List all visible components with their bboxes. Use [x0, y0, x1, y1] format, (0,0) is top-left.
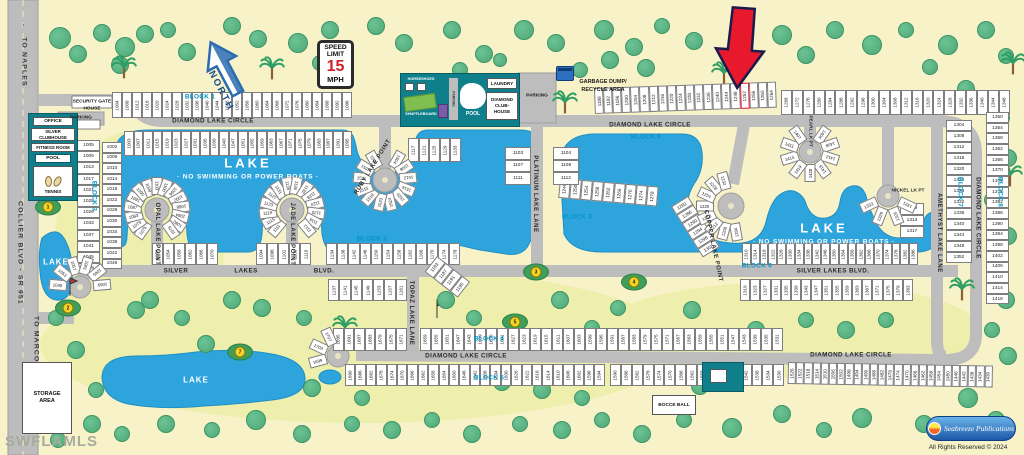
lot-1346: 1346 — [821, 243, 830, 265]
lot-1095: 1095 — [343, 131, 353, 156]
lot-1666: 1666 — [407, 364, 417, 386]
label-block-6: BLOCK 6 — [631, 134, 661, 141]
tree-icon — [683, 301, 701, 319]
lot-1650: 1650 — [449, 364, 459, 386]
tree-icon — [223, 291, 241, 309]
lot-1005: 1005 — [77, 140, 100, 151]
lot-1340: 1340 — [946, 219, 972, 230]
lot-1068: 1068 — [272, 92, 282, 118]
bocce-ball-label: BOCCE BALL — [652, 395, 696, 415]
lot-1016: 1016 — [142, 92, 152, 118]
golf-hole-number: 1 — [43, 202, 54, 213]
lot-1599: 1599 — [585, 328, 596, 351]
lot-1041: 1041 — [77, 241, 100, 252]
lot-1316: 1316 — [946, 153, 972, 164]
lot-1646: 1646 — [459, 364, 469, 386]
golf-hole-number: 7 — [235, 347, 246, 358]
tree-icon — [837, 321, 855, 339]
lot-1614: 1614 — [542, 364, 552, 386]
bocce-building — [702, 362, 744, 392]
lot-col-platinum-east: 110411081112 — [553, 147, 579, 185]
lot-1619: 1619 — [530, 328, 541, 351]
lot-row-b1-south: 1003100710111015101910231027103110351039… — [124, 131, 352, 156]
lot-1590: 1590 — [610, 364, 621, 386]
tree-icon — [127, 301, 145, 319]
lot-1674: 1674 — [387, 364, 397, 386]
lot-1141: 1141 — [339, 279, 350, 301]
tree-icon — [493, 53, 507, 67]
lot-1348: 1348 — [946, 241, 972, 252]
lot-1675: 1675 — [386, 328, 397, 351]
lot-1043: 1043 — [219, 131, 229, 156]
lot-1027: 1027 — [181, 131, 191, 156]
tree-icon — [637, 59, 655, 77]
label-blvd: BLVD. — [314, 268, 334, 275]
lot-1610: 1610 — [553, 364, 563, 386]
lot-1012: 1012 — [132, 92, 142, 118]
palm-tree-icon — [258, 56, 286, 85]
lot-1031: 1031 — [191, 131, 201, 156]
lot-1531: 1531 — [772, 328, 783, 351]
lot-1094: 1094 — [256, 243, 267, 265]
label-platinum-lake-lane: PLATINUM LAKE LANE — [532, 155, 538, 232]
lot-1059: 1059 — [257, 131, 267, 156]
palm-tree-icon — [948, 277, 976, 306]
tree-icon — [601, 51, 619, 69]
lot-1288: 1288 — [835, 90, 846, 115]
tree-icon — [852, 408, 872, 428]
shuffleboard-courts — [403, 93, 437, 112]
lot-1327: 1327 — [760, 279, 770, 301]
lot-1047: 1047 — [229, 131, 239, 156]
lot-row-silver-south-east: 1319132313271331133513391343134713511355… — [740, 279, 913, 301]
lot-1418: 1418 — [986, 294, 1009, 305]
security-gate-label-2: HOUSE — [83, 107, 100, 112]
lot-1336: 1336 — [966, 90, 977, 115]
office-label: OFFICE — [33, 117, 73, 126]
tree-icon — [798, 312, 814, 328]
lot-1570: 1570 — [664, 364, 675, 386]
lot-1535: 1535 — [761, 328, 772, 351]
tree-icon — [115, 37, 135, 57]
lot-1051: 1051 — [238, 131, 248, 156]
swimming-pool-shape — [460, 83, 486, 109]
label-block-7: BLOCK 7 — [957, 177, 964, 207]
lot-1658: 1658 — [428, 364, 438, 386]
lot-1342: 1342 — [812, 243, 821, 265]
tree-icon — [977, 21, 995, 39]
lot-1326: 1326 — [777, 243, 786, 265]
lot-1370: 1370 — [986, 165, 1009, 176]
lot-1606: 1606 — [563, 364, 573, 386]
lot-1062: 1062 — [185, 243, 196, 265]
tree-icon — [321, 21, 339, 39]
tree-icon — [69, 45, 87, 63]
tree-icon — [898, 22, 914, 38]
lot-1083: 1083 — [314, 131, 324, 156]
tree-icon — [514, 20, 534, 40]
lot-1534: 1534 — [762, 364, 773, 386]
lot-1284: 1284 — [825, 90, 836, 115]
lot-1344: 1344 — [946, 230, 972, 241]
tree-icon — [862, 35, 882, 55]
lot-1678: 1678 — [376, 364, 386, 386]
label-to-naples: TO NAPLES — [21, 37, 28, 87]
lot-col-platinum-west: 110311071111 — [505, 147, 531, 185]
label-pearl-lk-pt: PEARL LK PT — [808, 115, 813, 146]
lot-1129: 1129 — [440, 138, 451, 162]
lot-1683: 1683 — [365, 328, 376, 351]
lot-1080: 1080 — [302, 92, 312, 118]
laundry-label: LAUNDRY — [487, 78, 517, 89]
lot-1102: 1102 — [278, 243, 289, 265]
tennis-court: TENNIS — [33, 166, 73, 197]
lot-col-left-inner: 1002100610101014101810221026103010341038… — [102, 142, 122, 269]
tree-icon — [797, 46, 815, 64]
tree-icon — [443, 21, 461, 39]
tree-icon — [722, 418, 742, 438]
lot-1358: 1358 — [986, 133, 1009, 144]
lot-row-silver-north-w2: 10941098110211061110 — [256, 243, 311, 265]
lot-1002: 1002 — [102, 142, 122, 153]
lot-1582: 1582 — [632, 364, 643, 386]
lot-1378: 1378 — [892, 243, 901, 265]
lot-1157: 1157 — [384, 279, 395, 301]
storage-area: STORAGE AREA — [22, 362, 72, 434]
tree-icon — [463, 425, 481, 443]
lot-1351: 1351 — [822, 279, 832, 301]
diamond-clubhouse-complex: HORSESHOES SHUFFLEBOARD PARKING POOL LAU… — [400, 73, 520, 127]
lot-1626: 1626 — [511, 364, 521, 386]
tree-icon — [633, 425, 651, 443]
label-silver-lakes-blvd: SILVER LAKES BLVD. — [797, 268, 870, 275]
tree-icon — [253, 299, 271, 317]
lot-1691: 1691 — [344, 328, 355, 351]
lot-1108: 1108 — [553, 160, 579, 173]
tree-icon — [296, 310, 312, 326]
lot-1098: 1098 — [267, 243, 278, 265]
lot-1015: 1015 — [153, 131, 163, 156]
label-diamond-lake-circle: DIAMOND LAKE CIRCLE — [609, 122, 691, 129]
lot-1566: 1566 — [675, 364, 686, 386]
lot-1563: 1563 — [684, 328, 695, 351]
tree-icon — [553, 421, 571, 439]
lot-1276: 1276 — [803, 90, 814, 115]
tree-icon — [344, 416, 360, 432]
lot-1300: 1300 — [868, 90, 879, 115]
lot-1358: 1358 — [848, 243, 857, 265]
lot-1166: 1166 — [416, 243, 427, 265]
lot-row-block4-west: 1695169116871683167916751671 — [333, 328, 407, 351]
label-collier-blvd-sr-951: COLLIER BLVD - SR 951 — [17, 201, 24, 305]
label-topaz-lake-lane: TOPAZ LAKE LANE — [408, 281, 414, 346]
lot-1019: 1019 — [162, 131, 172, 156]
lot-1334: 1334 — [795, 243, 804, 265]
lot-1679: 1679 — [375, 328, 386, 351]
golf-hole-number: 3 — [531, 267, 542, 278]
pool2-label: POOL — [466, 111, 480, 117]
label-lake: LAKE — [800, 221, 847, 236]
lot-1383: 1383 — [903, 279, 913, 301]
tree-icon — [293, 425, 311, 443]
tree-icon — [246, 410, 266, 430]
lot-1316: 1316 — [912, 90, 923, 115]
lot-1117: 1117 — [408, 138, 419, 162]
lot-1324: 1324 — [933, 90, 944, 115]
tree-icon — [610, 300, 626, 316]
speed-sign-line2: LIMIT — [327, 52, 344, 59]
lot-1598: 1598 — [584, 364, 594, 386]
tree-icon — [174, 310, 190, 326]
lot-1571: 1571 — [662, 328, 673, 351]
lot-1410: 1410 — [986, 272, 1009, 283]
lot-1367: 1367 — [862, 279, 872, 301]
tree-icon — [67, 341, 85, 359]
label-glyph-21: ↑ — [22, 23, 27, 30]
tree-icon — [475, 45, 493, 63]
lot-1575: 1575 — [651, 328, 662, 351]
lot-1595: 1595 — [596, 328, 607, 351]
lot-1682: 1682 — [366, 364, 376, 386]
lot-1317: 1317 — [900, 226, 924, 238]
lot-1355: 1355 — [832, 279, 842, 301]
lot-1138: 1138 — [337, 243, 348, 265]
lot-1618: 1618 — [532, 364, 542, 386]
lot-1331: 1331 — [771, 279, 781, 301]
lot-1343: 1343 — [801, 279, 811, 301]
lot-1091: 1091 — [333, 131, 343, 156]
silver-clubhouse-label: SILVERCLUBHOUSE — [31, 128, 75, 141]
lot-row-silver-south-west: 1137114111451149115311571161 — [328, 279, 407, 301]
golf-hole-number: 2 — [63, 303, 74, 314]
lot-1058: 1058 — [174, 243, 185, 265]
lot-1371: 1371 — [872, 279, 882, 301]
label-no-swimming-or-power-boats: · NO SWIMMING OR POWER BOATS · — [177, 174, 319, 181]
lot-1003: 1003 — [124, 131, 134, 156]
bocce-court — [710, 369, 727, 383]
lot-1054: 1054 — [163, 243, 174, 265]
lot-1611: 1611 — [552, 328, 563, 351]
label-diamond-lake-circle: DIAMOND LAKE CIRCLE — [425, 353, 507, 360]
lot-1578: 1578 — [643, 364, 654, 386]
tree-icon — [512, 416, 528, 432]
tree-icon — [204, 422, 220, 438]
lot-1398: 1398 — [986, 240, 1009, 251]
lot-1084: 1084 — [312, 92, 322, 118]
lot-1009: 1009 — [77, 151, 100, 162]
lot-1339: 1339 — [791, 279, 801, 301]
tree-icon — [93, 24, 111, 42]
lot-1046: 1046 — [102, 259, 122, 270]
lot-1320: 1320 — [923, 90, 934, 115]
horseshoe-pit — [417, 83, 426, 91]
lot-1039: 1039 — [210, 131, 220, 156]
lot-1350: 1350 — [986, 112, 1009, 123]
lot-1110: 1110 — [300, 243, 311, 265]
lot-1687: 1687 — [354, 328, 365, 351]
lot-row-silver-north-w1: 105010541058106210661070 — [152, 243, 218, 265]
tree-icon — [303, 379, 321, 397]
lot-1586: 1586 — [621, 364, 632, 386]
lot-1312: 1312 — [901, 90, 912, 115]
lot-1042: 1042 — [102, 248, 122, 259]
lot-1022: 1022 — [102, 195, 122, 206]
lot-1336: 1336 — [946, 208, 972, 219]
tree-icon — [160, 22, 176, 38]
pool-label: POOL — [35, 154, 71, 163]
lot-1063: 1063 — [267, 131, 277, 156]
lot-1011: 1011 — [143, 131, 153, 156]
copyright-notice: All Rights Reserved © 2024 — [918, 444, 1018, 451]
lot-1304: 1304 — [879, 90, 890, 115]
lot-row-ruby-east-row: 11171121112511291133 — [408, 138, 461, 162]
lot-1308: 1308 — [890, 90, 901, 115]
label-diamond-lake-circle: DIAMOND LAKE CIRCLE — [810, 352, 892, 359]
lot-1007: 1007 — [134, 131, 144, 156]
lot-1142: 1142 — [348, 243, 359, 265]
lot-1268: 1268 — [781, 90, 792, 115]
lot-1655: 1655 — [431, 328, 442, 351]
tree-icon — [551, 291, 569, 309]
lot-1013: 1013 — [77, 162, 100, 173]
lot-1121: 1121 — [419, 138, 430, 162]
lot-1654: 1654 — [439, 364, 449, 386]
lot-1308: 1308 — [946, 131, 972, 142]
lot-1076: 1076 — [292, 92, 302, 118]
tree-icon — [594, 412, 610, 428]
lot-1010: 1010 — [102, 163, 122, 174]
lot-1555: 1555 — [706, 328, 717, 351]
palm-tree-icon — [110, 55, 138, 84]
lot-1602: 1602 — [574, 364, 584, 386]
label-lakes: LAKES — [234, 268, 257, 275]
lot-1539: 1539 — [750, 328, 761, 351]
diamond-clubhouse-label: DIAMONDCLUB-HOUSE — [486, 92, 518, 120]
lot-1023: 1023 — [172, 131, 182, 156]
fitness-room-label: FITNESS ROOM — [31, 143, 75, 152]
tree-icon — [157, 415, 175, 433]
tree-icon — [625, 38, 643, 56]
label-garbage-dump: GARBAGE DUMP/ — [579, 79, 626, 85]
lot-1538: 1538 — [752, 364, 763, 386]
lot-1092: 1092 — [332, 92, 342, 118]
lot-1567: 1567 — [673, 328, 684, 351]
tree-icon — [49, 27, 71, 49]
lot-1272: 1272 — [792, 90, 803, 115]
tree-icon — [136, 25, 154, 43]
lot-row-north-east-2: 1268127212761280128412881292129613001304… — [781, 90, 1010, 115]
lot-1278: 1278 — [646, 186, 659, 207]
lot-1296: 1296 — [857, 90, 868, 115]
tree-icon — [958, 388, 978, 408]
tree-icon — [383, 421, 401, 439]
lot-1150: 1150 — [371, 243, 382, 265]
tree-icon — [367, 17, 385, 35]
lot-1375: 1375 — [883, 279, 893, 301]
lot-1615: 1615 — [541, 328, 552, 351]
tree-icon — [938, 35, 958, 55]
lot-1020: 1020 — [152, 92, 162, 118]
label-block-3: BLOCK 3 — [562, 214, 592, 221]
lot-1028: 1028 — [172, 92, 182, 118]
lot-1394: 1394 — [986, 230, 1009, 241]
label-amethyst-lake-lane: AMETHYST LAKE LANE — [936, 193, 942, 273]
lot-1352: 1352 — [946, 252, 972, 263]
lot-1362: 1362 — [856, 243, 865, 265]
tree-icon — [288, 33, 308, 53]
label-lake: LAKE — [183, 376, 209, 385]
shuffleboard-label: SHUFFLEBOARD — [405, 112, 436, 116]
lot-1004: 1004 — [112, 92, 122, 118]
community-site-map: 1234567100410081012101610201024102810321… — [0, 0, 1024, 455]
tree-icon — [88, 382, 104, 398]
lot-1280: 1280 — [814, 90, 825, 115]
lot-1125: 1125 — [429, 138, 440, 162]
lot-1551: 1551 — [717, 328, 728, 351]
lot-1347: 1347 — [811, 279, 821, 301]
tree-icon — [922, 59, 938, 75]
lot-1579: 1579 — [640, 328, 651, 351]
label-block-2: BLOCK 2 — [357, 236, 387, 243]
lot-1134: 1134 — [326, 243, 337, 265]
label-block-6: BLOCK 6 — [742, 263, 772, 270]
tree-icon — [114, 426, 130, 442]
lot-1323: 1323 — [750, 279, 760, 301]
lot-1386: 1386 — [986, 208, 1009, 219]
lot-1107: 1107 — [505, 160, 531, 173]
lot-1363: 1363 — [852, 279, 862, 301]
lot-1622: 1622 — [522, 364, 532, 386]
lot-1591: 1591 — [607, 328, 618, 351]
lot-1070: 1070 — [207, 243, 218, 265]
lot-1320: 1320 — [946, 164, 972, 175]
tree-icon — [816, 422, 832, 438]
lot-1366: 1366 — [865, 243, 874, 265]
lot-1338: 1338 — [804, 243, 813, 265]
tree-icon — [594, 20, 614, 40]
lot-1072: 1072 — [282, 92, 292, 118]
label-parking: PARKING — [526, 94, 548, 99]
lot-1161: 1161 — [396, 279, 407, 301]
lot-1382: 1382 — [900, 243, 909, 265]
lot-1386: 1386 — [909, 243, 918, 265]
label-nickel-lk-pt: NICKEL LK PT — [892, 189, 925, 194]
parking-strip: PARKING — [449, 78, 458, 120]
tree-icon — [999, 347, 1017, 365]
watermark: SWFLAMLS — [5, 433, 98, 450]
lot-1390: 1390 — [986, 219, 1009, 230]
lot-1671: 1671 — [396, 328, 407, 351]
lot-1543: 1543 — [739, 328, 750, 351]
lot-1547: 1547 — [728, 328, 739, 351]
lot-1662: 1662 — [418, 364, 428, 386]
label-block-8: BLOCK 8 — [997, 177, 1004, 207]
lot-1670: 1670 — [397, 364, 407, 386]
speed-sign-unit: MPH — [327, 76, 344, 84]
lot-1146: 1146 — [360, 243, 371, 265]
lot-1033: 1033 — [77, 218, 100, 229]
tree-icon — [654, 18, 670, 34]
tree-icon — [984, 322, 1000, 338]
lot-1328: 1328 — [944, 90, 955, 115]
lot-1018: 1018 — [102, 184, 122, 195]
tree-icon — [395, 34, 413, 52]
lot-1066: 1066 — [196, 243, 207, 265]
lot-1574: 1574 — [654, 364, 665, 386]
lot-1583: 1583 — [629, 328, 640, 351]
golf-hole-number: 5 — [510, 317, 521, 328]
lot-1162: 1162 — [404, 243, 415, 265]
